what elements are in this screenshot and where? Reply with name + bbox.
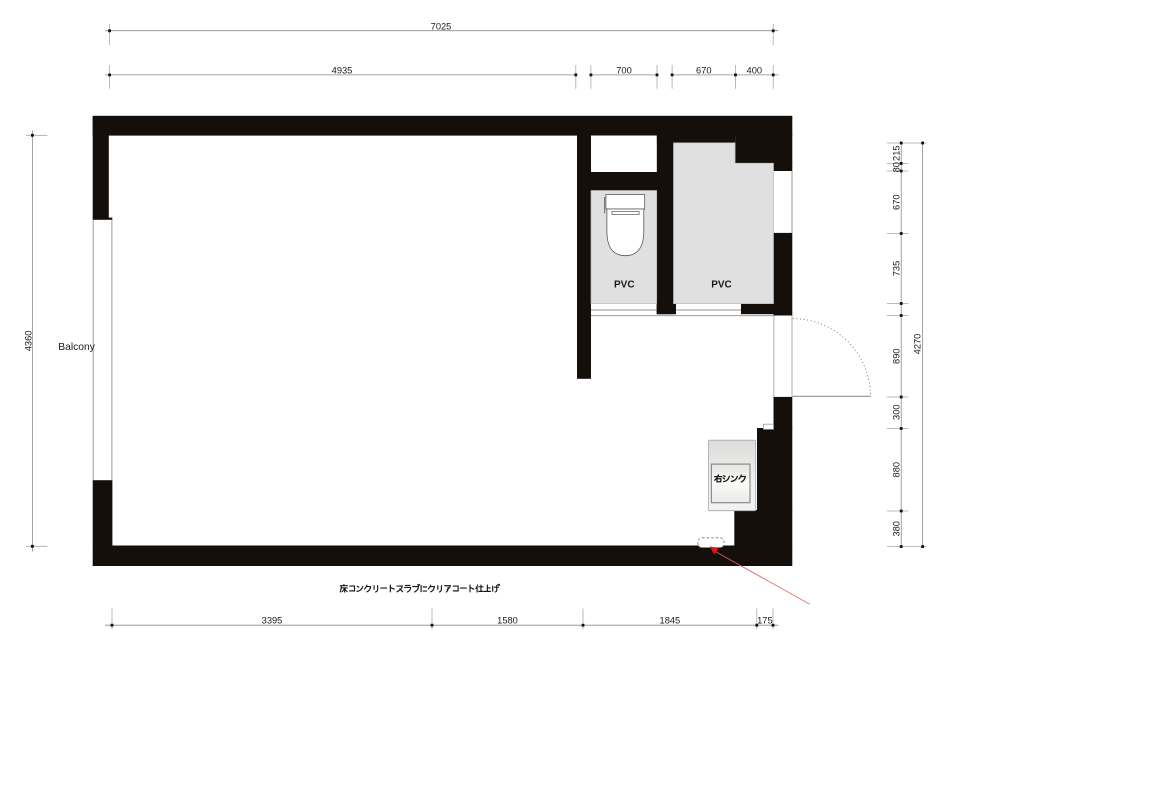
svg-text:PVC: PVC [614,280,635,291]
svg-text:1845: 1845 [660,615,681,625]
svg-text:890: 890 [892,348,902,364]
svg-text:3395: 3395 [262,615,283,625]
svg-text:670: 670 [892,194,902,210]
svg-text:4935: 4935 [332,65,353,75]
svg-text:7025: 7025 [431,21,452,31]
svg-text:4270: 4270 [913,334,923,355]
svg-text:880: 880 [892,462,902,478]
svg-text:4360: 4360 [23,331,33,352]
svg-text:215: 215 [892,145,902,161]
svg-text:300: 300 [892,404,902,420]
svg-text:175: 175 [757,615,773,625]
svg-text:1580: 1580 [497,615,518,625]
svg-text:400: 400 [747,65,763,75]
svg-text:PVC: PVC [711,280,732,291]
svg-text:735: 735 [892,261,902,277]
svg-text:380: 380 [892,521,902,537]
svg-text:700: 700 [616,65,632,75]
svg-text:Balcony: Balcony [58,342,95,353]
svg-text:80: 80 [892,162,902,172]
svg-text:670: 670 [696,65,712,75]
